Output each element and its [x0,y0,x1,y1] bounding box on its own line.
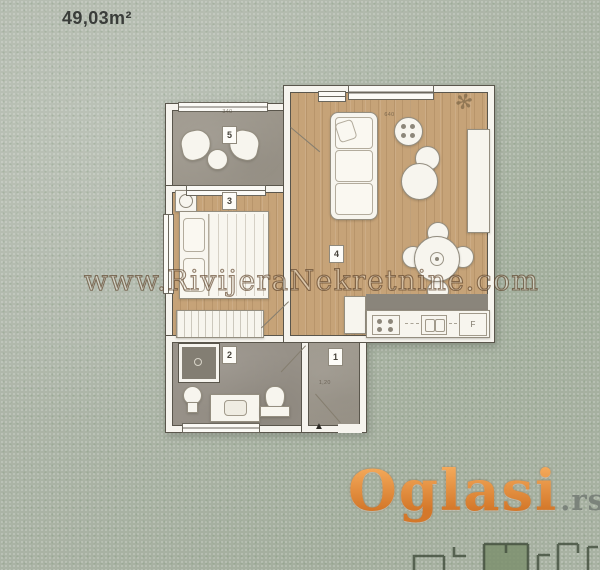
logo-tld: .rs [560,483,600,517]
cabinet-dash [405,323,419,324]
watermark: www.RivijeraNekretnine.com [84,264,520,297]
logo-text: Oglasi [348,458,558,524]
sink-icon [421,315,447,335]
pillow [183,218,205,252]
living-window-small [318,91,346,102]
kitchen-counter: F [366,310,490,338]
ac-unit-fan [179,194,193,208]
oglasi-logo: Oglasi .rs [348,458,600,524]
room-label-hallway: 1 [328,348,343,366]
dimension-label: 640 [384,111,394,117]
pedestal-sink-base [187,402,198,413]
area-label: 49,03m² [62,8,132,29]
vanity-sink [210,394,260,422]
wardrobe [176,310,264,338]
table-dots [401,124,406,129]
toilet-tank [260,406,290,417]
mini-floorplan-sketch [410,541,600,570]
sink-bowl [435,319,445,332]
sofa [330,112,378,220]
stove-icon [372,315,400,335]
sofa-cushion [335,150,373,182]
armchair-pouf [401,163,438,200]
dimension-label: 1,20 [319,379,331,385]
hall-closet [344,296,366,334]
dimension-label: 340 [222,108,232,114]
room-label-living: 4 [329,245,344,263]
fridge: F [459,313,487,336]
entrance-opening [338,424,362,433]
cabinet-dash [449,323,457,324]
shower-drain [194,358,202,366]
screenshot-stage: 49,03m² [0,0,600,570]
sink-basin [224,400,247,416]
room-label-bathroom: 2 [222,346,237,364]
sink-bowl [425,319,435,332]
entrance-arrow-icon: ▲ [314,421,324,432]
four-seat-table [394,117,423,146]
sideboard-cabinet [467,129,490,233]
dining-table-dot [435,257,439,261]
room-label-terrace: 5 [222,126,237,144]
terrace-table [207,149,228,170]
bathroom-window [182,423,260,433]
shower [179,344,219,382]
sofa-cushion [335,183,373,215]
room-label-bedroom: 3 [222,192,237,210]
stove-burners [377,319,382,324]
living-window-large [348,85,434,100]
